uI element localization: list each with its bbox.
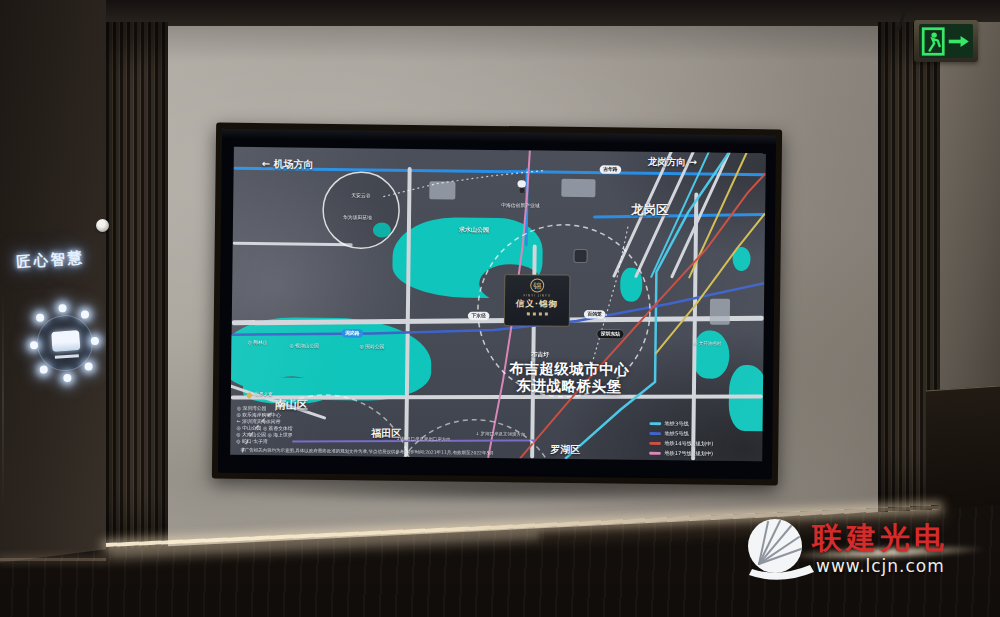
park-label-weiling: ◎ 围岭公园 (359, 343, 384, 350)
district-longgang: 龙岗区 (631, 202, 669, 219)
logo-light-dot (81, 310, 90, 319)
exit-sign-face (919, 24, 973, 58)
wall-corner-highlight (2, 290, 4, 510)
screen-bezel: ← 机场方向 龙岗方向 → 龙岗区 中海信创新产业城 天安云谷 华为坂田基地 求… (218, 129, 776, 480)
baseboard-light-left (0, 558, 106, 561)
park-label-yinhu: ◎ 银湖山公园 (289, 342, 319, 349)
legend-label: 地铁5号线 (664, 430, 688, 438)
road-pill-danping: 丹平快速 (517, 180, 525, 187)
logo-emblem (51, 330, 80, 352)
legend-row: 地铁5号线 (649, 430, 759, 439)
legend-swatch-line14 (649, 442, 661, 445)
station-pill: 下水径 (468, 312, 490, 321)
logo-light-dot (36, 313, 45, 322)
watermark-brand: 联建光电 (812, 518, 948, 559)
park-label-meilin: ◎ 梅林山 (247, 339, 267, 346)
road-pill-nigang: 泥岗路 (342, 329, 364, 338)
logo-light-dot (84, 362, 93, 371)
road-pill-jihua: 吉华路 (600, 165, 622, 174)
direction-longgang: 龙岗方向 → (648, 156, 697, 170)
note-futian-port: ↓ 福田口岸及皇岗口岸方向 (396, 436, 451, 443)
logo-light-dot (39, 365, 48, 374)
location-map: ← 机场方向 龙岗方向 → 龙岗区 中海信创新产业城 天安云谷 华为坂田基地 求… (230, 147, 766, 461)
slogan-line1: 布吉超级城市中心 (483, 360, 655, 379)
legend-row: 地铁3号线 (650, 420, 760, 429)
slogan-tag: 布吉圩 (531, 350, 549, 359)
running-man-exit-icon (920, 26, 972, 57)
wall-sensor (96, 219, 109, 232)
logo-light-dot (58, 304, 67, 313)
showroom-photo: 匠心智慧 (0, 0, 1000, 617)
legend-swatch-line5 (649, 432, 661, 435)
station-pill-shenzhen-east: 深圳东站 (597, 329, 625, 339)
fan-logo-icon (738, 514, 814, 590)
illuminated-ring-logo-icon (25, 295, 107, 392)
note-luohu-port: ↓ 罗湖口岸及文锦渡方向 (475, 431, 525, 438)
circle-poi-line2: 华为坂田基地 (343, 214, 372, 221)
watermark-url: www.lcjn.com (816, 556, 945, 576)
project-emblem-icon: 锦 (530, 278, 544, 292)
legend-row: 地铁27号线 (规划中) (649, 459, 759, 461)
led-screen: ← 机场方向 龙岗方向 → 龙岗区 中海信创新产业城 天安云谷 华为坂田基地 求… (212, 123, 782, 486)
park-label-qiushui: 求水山公园 (459, 226, 489, 235)
project-latin-name: XINYI JINYU (521, 293, 553, 297)
poi-row: ◎ 蛇口·太子湾 (236, 438, 344, 446)
project-name: 信义·锦御 (505, 298, 569, 311)
screen-drop-shadow (238, 478, 762, 504)
project-logo-box: 锦 XINYI JINYU 信义·锦御 (504, 274, 571, 327)
circle-poi-line1: 天安云谷 (351, 192, 370, 199)
station-pill: 百鸽笼 (584, 310, 606, 319)
right-console-cabinet (926, 385, 1000, 514)
project-divider-dots (505, 312, 569, 316)
legend-label: 地铁3号线 (665, 420, 689, 428)
legend-swatch-line3 (650, 422, 662, 425)
legend-label: 地铁27号线 (规划中) (664, 459, 713, 461)
legend-label: 地铁14号线 (规划中) (664, 440, 713, 448)
park-label-dafen: ◎ 大芬油画村 (693, 340, 721, 346)
legend-row: 地铁14号线 (规划中) (649, 440, 759, 449)
logo-light-dot (63, 374, 72, 383)
exit-sign (914, 20, 978, 62)
industry-park-label: 中海信创新产业城 (501, 202, 539, 209)
logo-light-dot (91, 337, 100, 346)
poi-list-nanshan: ◎ 深圳湾公园 ◎ 欢乐海岸购物中心 ← 深圳湾滨海休闲带 ◎ 中山公园 ◎ 荔… (236, 405, 344, 446)
left-slat-pillar (106, 22, 168, 562)
map-slogan: 布吉超级城市中心 东进战略桥头堡 (483, 360, 655, 396)
slogan-line2: 东进战略桥头堡 (483, 377, 655, 396)
direction-airport: ← 机场方向 (262, 157, 314, 172)
poi-world-window: 世界之窗 (255, 391, 273, 397)
